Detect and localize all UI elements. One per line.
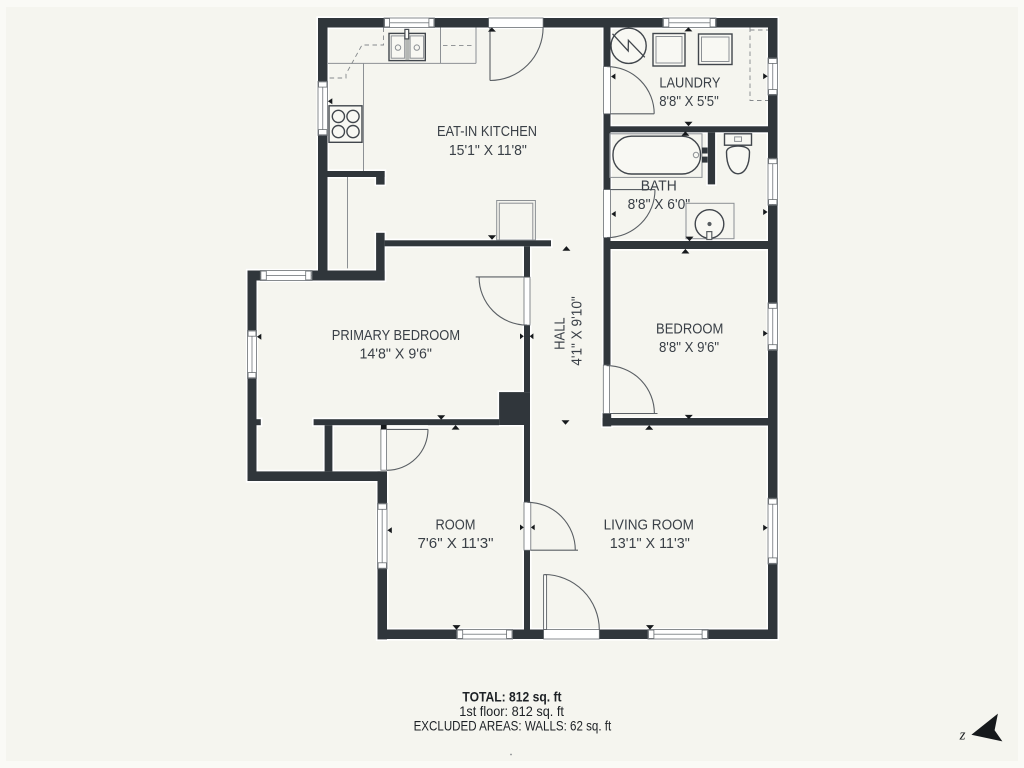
svg-text:4'1" X 9'10": 4'1" X 9'10"	[570, 296, 586, 366]
svg-text:EAT-IN KITCHEN: EAT-IN KITCHEN	[437, 123, 537, 140]
svg-text:8'8" X 6'0": 8'8" X 6'0"	[628, 197, 691, 213]
svg-text:ROOM: ROOM	[436, 516, 476, 533]
svg-text:BEDROOM: BEDROOM	[656, 320, 723, 337]
svg-text:14'8" X 9'6": 14'8" X 9'6"	[360, 346, 432, 362]
svg-text:15'1" X 11'8": 15'1" X 11'8"	[449, 143, 527, 159]
svg-text:HALL: HALL	[552, 317, 569, 350]
svg-text:LAUNDRY: LAUNDRY	[659, 75, 720, 92]
svg-text:LIVING ROOM: LIVING ROOM	[604, 516, 694, 533]
svg-text:PRIMARY BEDROOM: PRIMARY BEDROOM	[332, 327, 460, 344]
svg-text:BATH: BATH	[641, 177, 677, 194]
svg-text:13'1" X 11'3": 13'1" X 11'3"	[610, 536, 690, 552]
svg-text:7'6" X 11'3": 7'6" X 11'3"	[418, 536, 494, 552]
svg-text:8'8" X 9'6": 8'8" X 9'6"	[659, 340, 719, 356]
svg-text:z: z	[959, 728, 966, 744]
svg-text:EXCLUDED AREAS: WALLS: 62 sq.: EXCLUDED AREAS: WALLS: 62 sq. ft	[414, 718, 612, 734]
svg-text:8'8" X 5'5": 8'8" X 5'5"	[659, 94, 719, 110]
